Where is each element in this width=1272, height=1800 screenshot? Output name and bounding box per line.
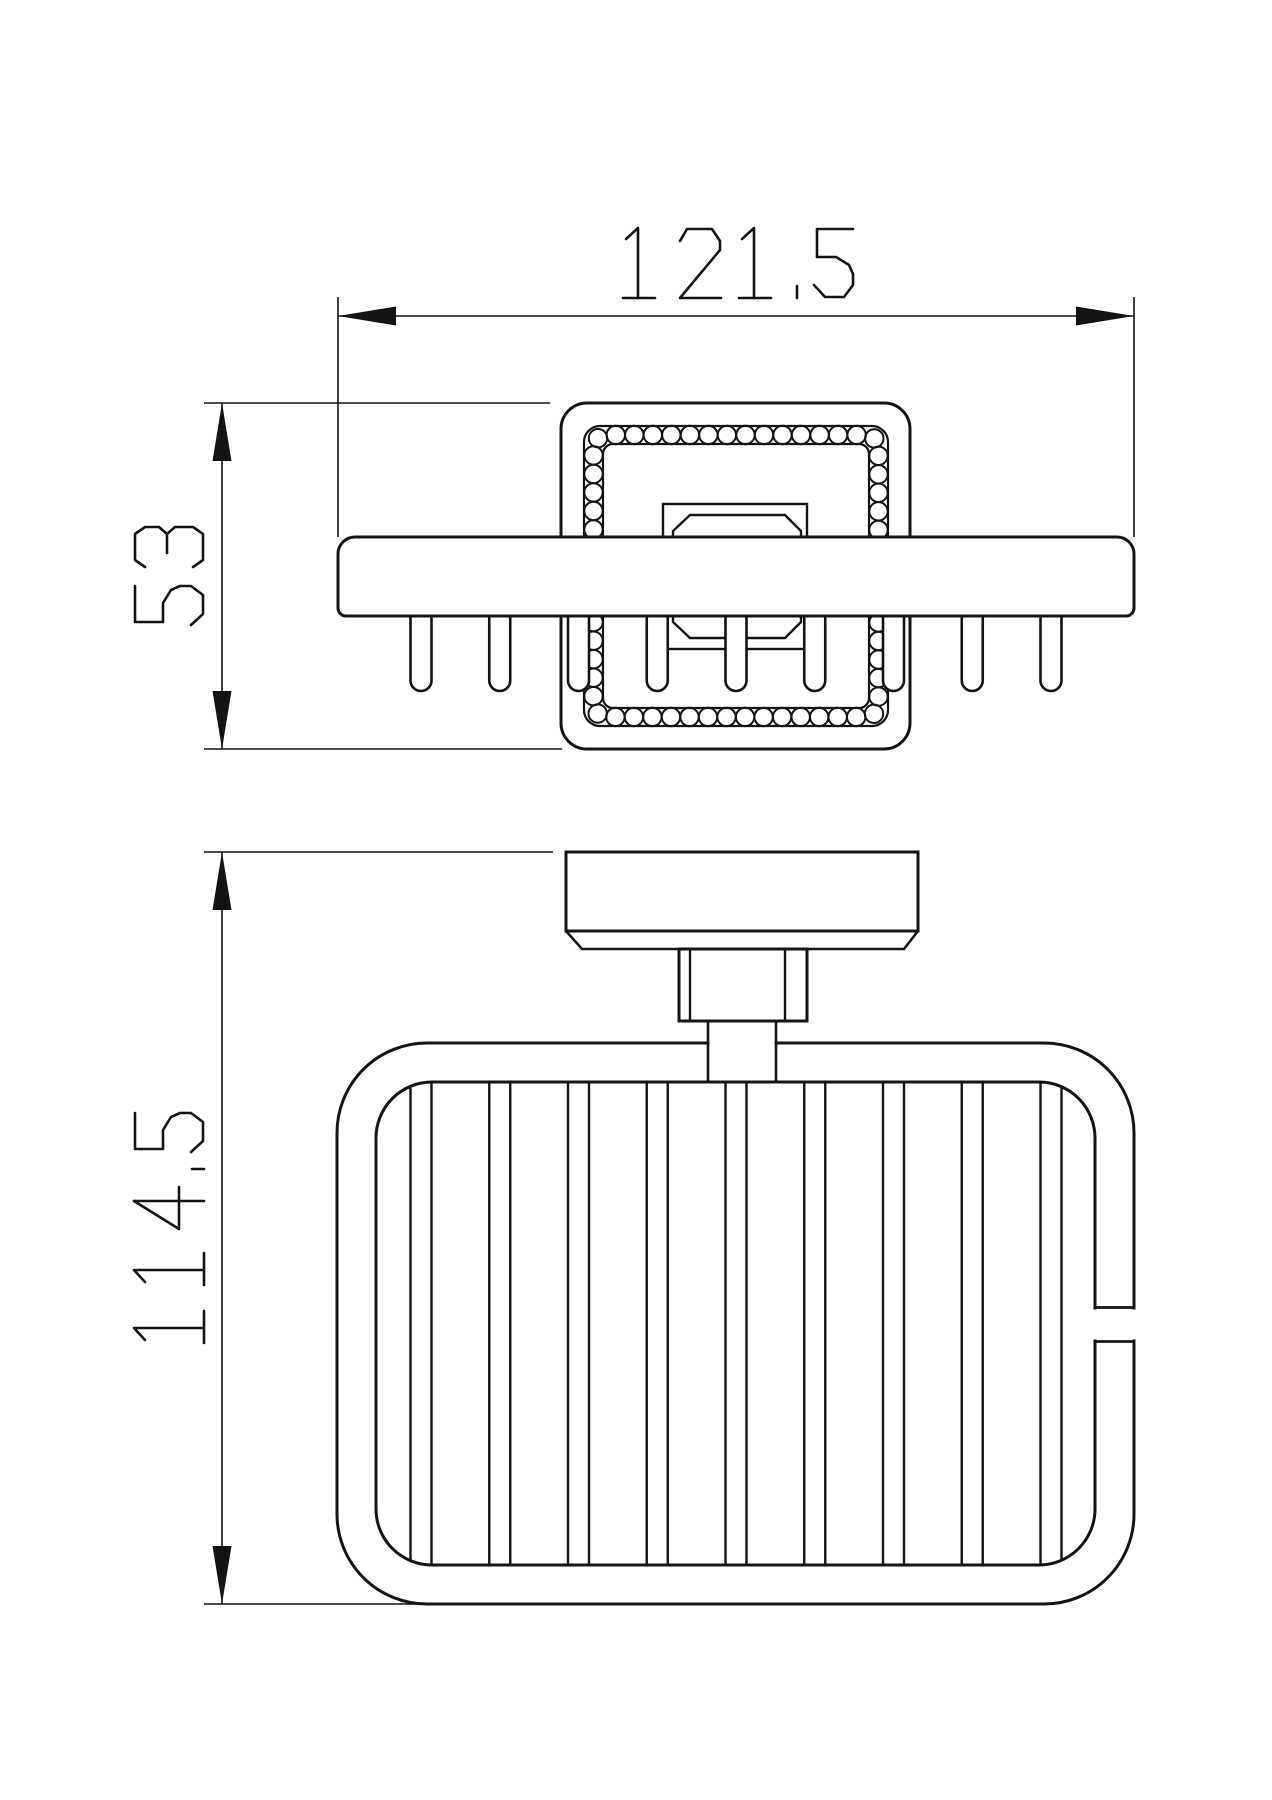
rod-end bbox=[1041, 616, 1062, 691]
mounting-collar bbox=[679, 949, 807, 1021]
arrowhead-down bbox=[213, 691, 232, 749]
basket-rod-ends bbox=[411, 616, 1062, 691]
rod-end bbox=[804, 616, 825, 691]
rod-end bbox=[962, 616, 983, 691]
rod-end bbox=[411, 616, 432, 691]
wall-plate bbox=[566, 852, 918, 931]
width-dimension-label bbox=[623, 228, 853, 298]
bracket-height-dimension-label bbox=[135, 527, 203, 625]
rod-end bbox=[883, 616, 904, 691]
rod-end bbox=[726, 616, 747, 691]
basket-inner-frame bbox=[376, 1082, 1095, 1565]
basket-rail-bar bbox=[338, 537, 1134, 616]
wall-plate-bevel bbox=[566, 931, 918, 949]
arrowhead-left bbox=[338, 307, 396, 326]
stem-face bbox=[710, 1023, 775, 1080]
rod-end bbox=[489, 616, 510, 691]
arrowhead-down bbox=[213, 1546, 232, 1604]
top-view bbox=[135, 228, 1134, 749]
rod-end bbox=[647, 616, 668, 691]
overall-height-dimension-label bbox=[134, 1113, 204, 1343]
frame-notch-gap bbox=[1089, 1310, 1138, 1340]
technical-drawing-canvas bbox=[0, 0, 1272, 1800]
drawing-sheet bbox=[0, 0, 1272, 1800]
arrowhead-up bbox=[213, 852, 232, 910]
arrowhead-right bbox=[1076, 307, 1134, 326]
rod-end bbox=[568, 616, 589, 691]
front-view bbox=[134, 852, 1138, 1604]
arrowhead-up bbox=[213, 403, 232, 461]
